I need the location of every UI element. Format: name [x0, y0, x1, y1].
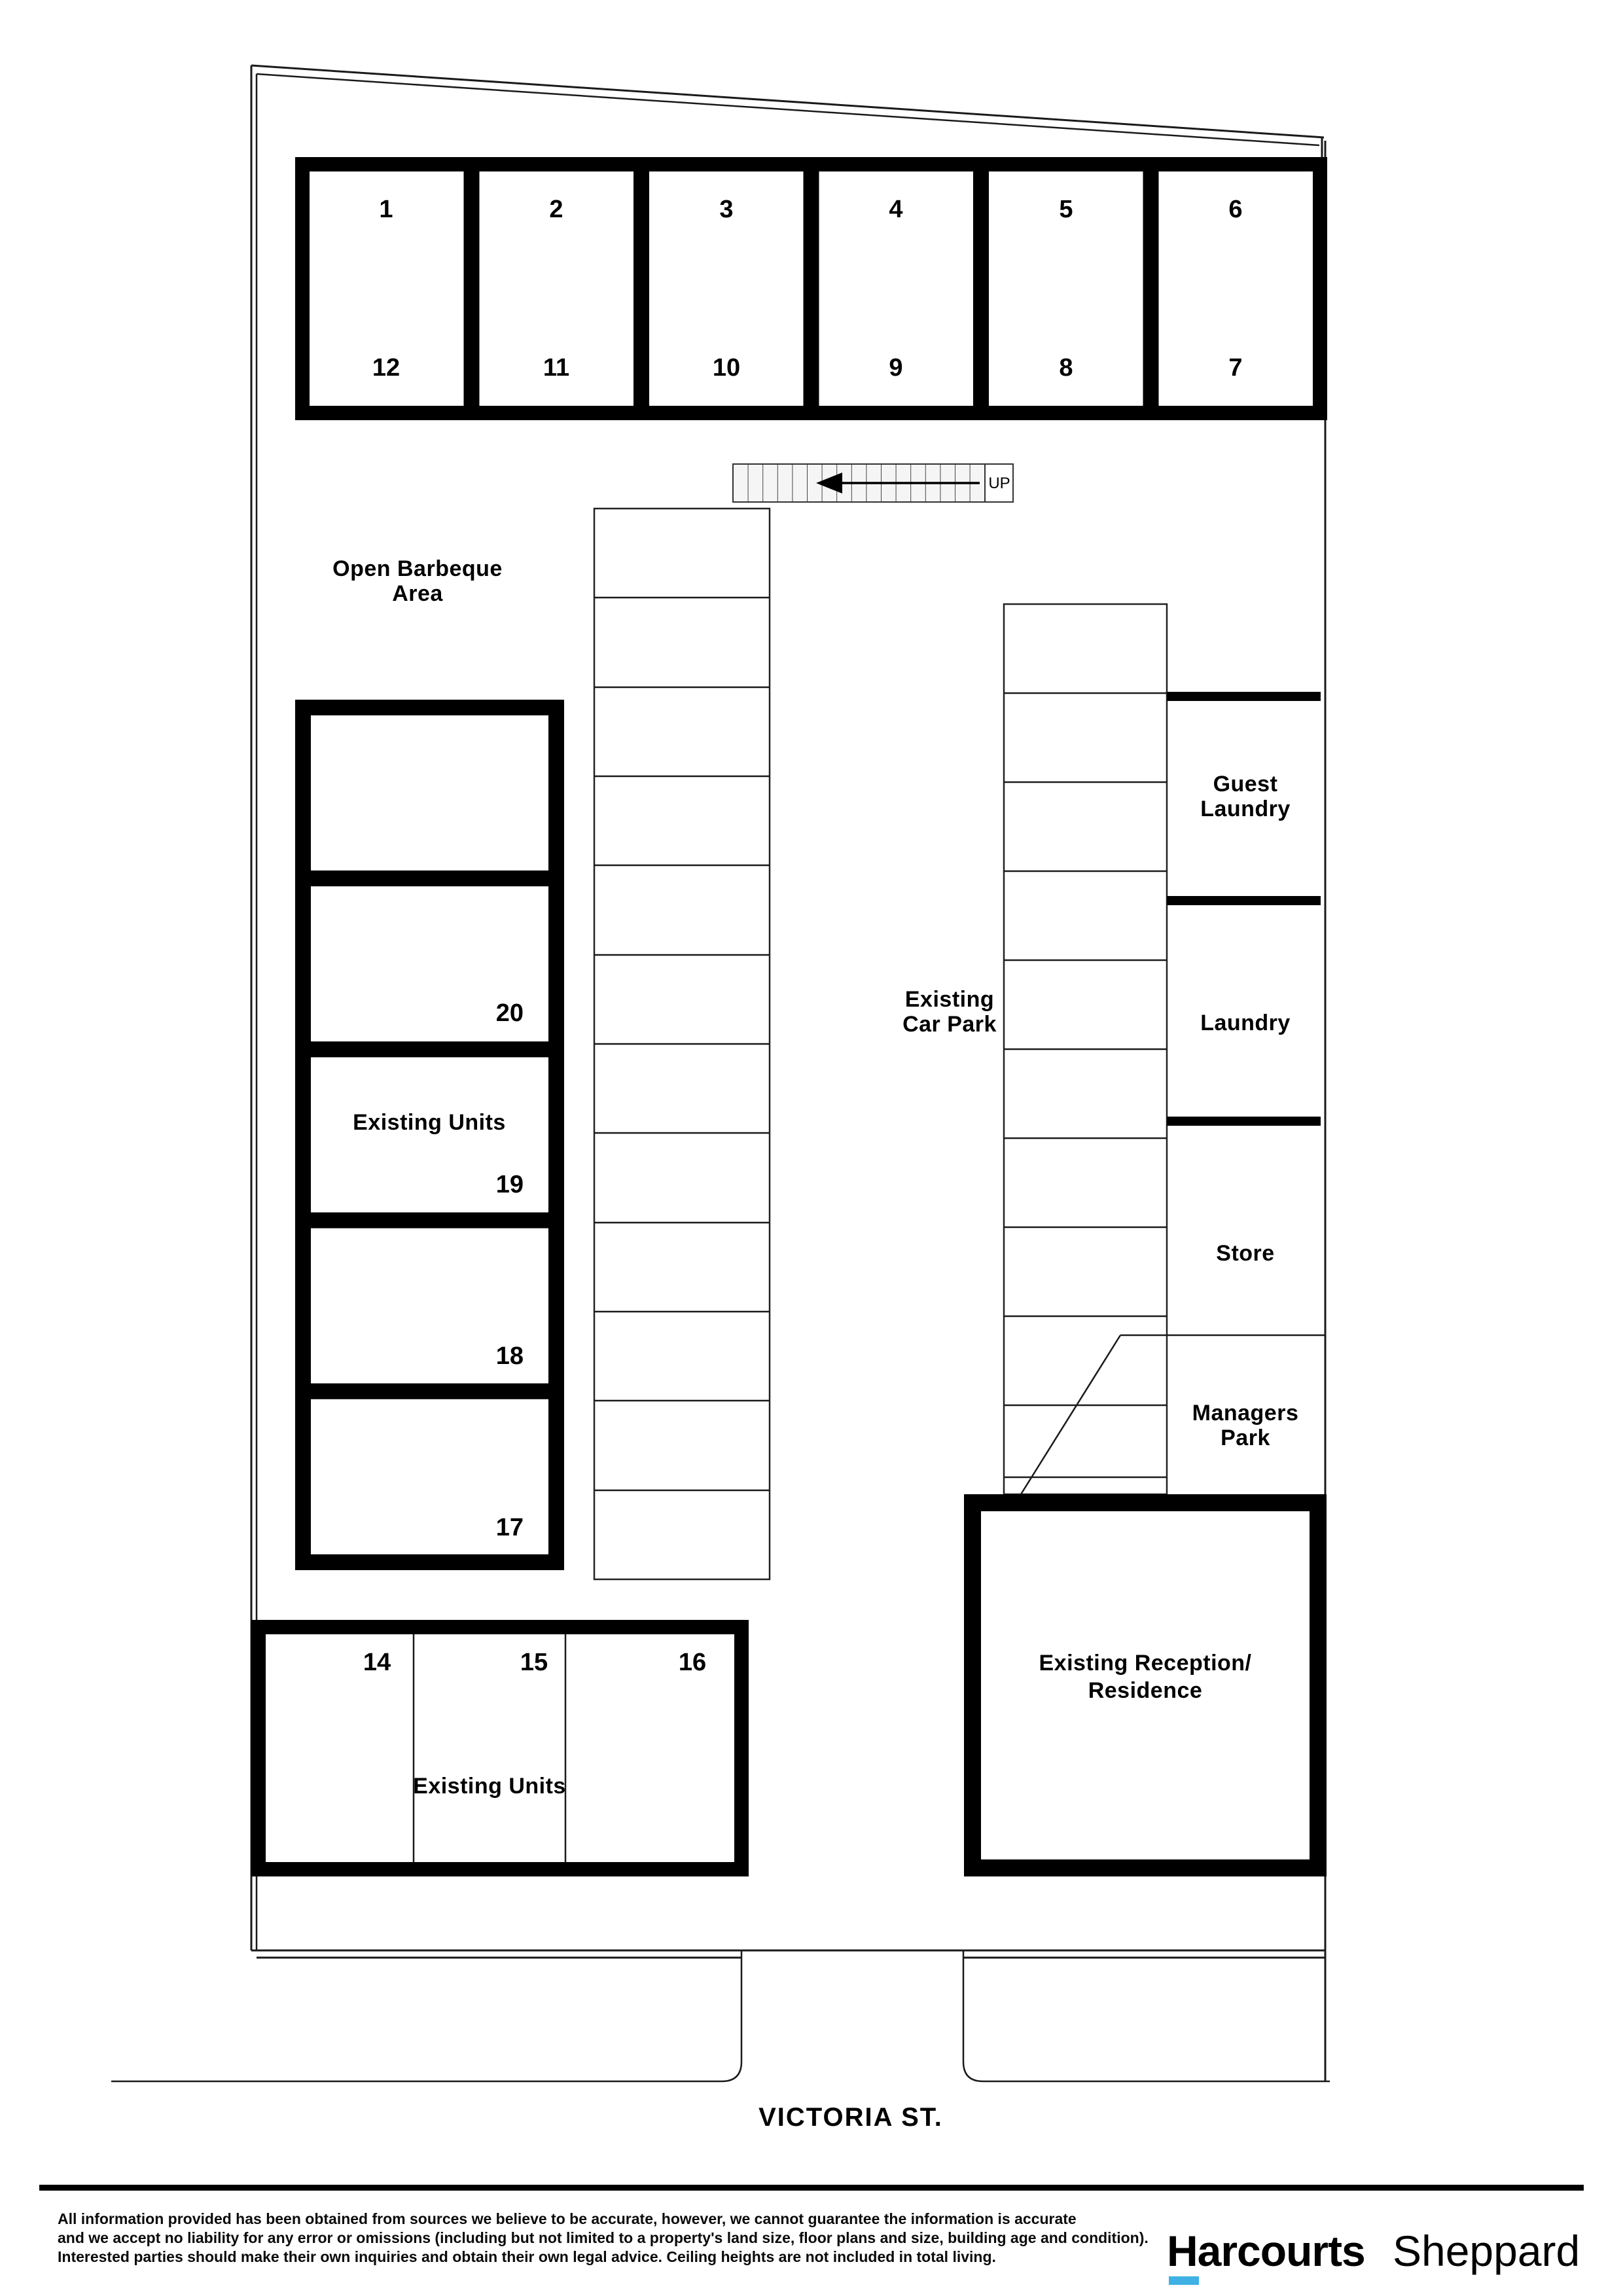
agency-logo: Harcourts Sheppard	[1167, 2227, 1580, 2285]
driveway-flare-right	[963, 2062, 983, 2081]
reception-block: Existing Reception/ Residence	[964, 1494, 1327, 1876]
car-park-label-line2: Car Park	[902, 1012, 997, 1037]
footer: All information provided has been obtain…	[39, 2185, 1584, 2285]
top-units-wall-3	[804, 171, 819, 406]
managers-park-label-line2: Park	[1221, 1426, 1270, 1450]
bottom-units-block: 14 15 16 Existing Units	[251, 1620, 749, 1876]
barbeque-label-line1: Open Barbeque	[332, 556, 503, 581]
disclaimer-line3: Interested parties should make their own…	[58, 2248, 996, 2265]
unit-number: 2	[549, 196, 563, 223]
unit-number: 11	[543, 354, 569, 382]
unit-number: 12	[372, 354, 400, 382]
street-name-label: VICTORIA ST.	[758, 2103, 943, 2132]
laundry-label: Laundry	[1200, 1011, 1291, 1035]
top-units-block: 1 2 3 4 5 6 12 11 10 9 8 7	[295, 157, 1327, 420]
disclaimer-line2: and we accept no liability for any error…	[58, 2229, 1149, 2246]
left-unit-cell	[311, 715, 548, 870]
unit-number: 15	[520, 1649, 548, 1676]
unit-number: 3	[719, 196, 733, 223]
barbeque-area-label: Open Barbeque Area	[332, 556, 503, 606]
car-park-label: Existing Car Park	[902, 987, 997, 1037]
barbeque-label-line2: Area	[392, 581, 443, 606]
store-top-wall	[1167, 1117, 1321, 1126]
top-units-wall-1	[464, 171, 480, 406]
guest-laundry-top-wall	[1167, 692, 1321, 701]
guest-laundry-label-line2: Laundry	[1200, 797, 1291, 821]
guest-laundry-label-line1: Guest	[1213, 772, 1278, 797]
top-units-wall-4	[973, 171, 989, 406]
unit-number: 18	[496, 1342, 524, 1370]
stair-up-label: UP	[988, 475, 1010, 492]
unit-number: 6	[1228, 196, 1242, 223]
floor-plan-page: VICTORIA ST. 1 2 3 4 5 6 12 11 10 9 8 7 …	[0, 0, 1623, 2296]
footer-separator-line	[39, 2185, 1584, 2191]
right-parking-bays	[1004, 604, 1167, 1494]
staircase: UP	[733, 464, 1013, 502]
boundary-top-line-inner	[257, 74, 1319, 145]
reception-label-line2: Residence	[1088, 1678, 1203, 1703]
logo-brand-text: Harcourts	[1167, 2227, 1365, 2275]
unit-number: 14	[363, 1649, 391, 1676]
boundary-top-line-outer	[251, 65, 1324, 137]
disclaimer-line1: All information provided has been obtain…	[58, 2210, 1077, 2227]
logo-underline	[1169, 2276, 1199, 2285]
central-parking-bays	[594, 509, 770, 1579]
bottom-units-interior	[266, 1634, 734, 1862]
unit-number: 4	[889, 196, 902, 223]
top-units-wall-2	[633, 171, 649, 406]
unit-number: 8	[1059, 354, 1073, 382]
reception-label-line1: Existing Reception/	[1039, 1651, 1252, 1676]
car-park-label-line1: Existing	[905, 987, 994, 1012]
driveway-flare-left	[722, 2062, 741, 2081]
floor-plan: VICTORIA ST. 1 2 3 4 5 6 12 11 10 9 8 7 …	[0, 0, 1623, 2296]
unit-number: 7	[1228, 354, 1242, 382]
left-units-block: 20 Existing Units 19 18 17	[295, 700, 564, 1570]
unit-number: 9	[889, 354, 902, 382]
unit-number: 17	[496, 1514, 524, 1541]
unit-number: 1	[379, 196, 393, 223]
unit-number: 10	[713, 354, 740, 382]
managers-park-label-line1: Managers	[1192, 1401, 1299, 1426]
store-label: Store	[1216, 1241, 1274, 1266]
guest-laundry-bottom-wall	[1167, 896, 1321, 905]
bottom-units-label: Existing Units	[413, 1774, 566, 1799]
logo-office-text: Sheppard	[1393, 2227, 1580, 2275]
unit-number: 19	[496, 1171, 524, 1198]
unit-number: 16	[679, 1649, 706, 1676]
top-units-wall-5	[1143, 171, 1159, 406]
street-frontage: VICTORIA ST.	[111, 1950, 1330, 2132]
left-units-label: Existing Units	[353, 1110, 506, 1135]
unit-number: 20	[496, 999, 524, 1027]
unit-number: 5	[1059, 196, 1073, 223]
